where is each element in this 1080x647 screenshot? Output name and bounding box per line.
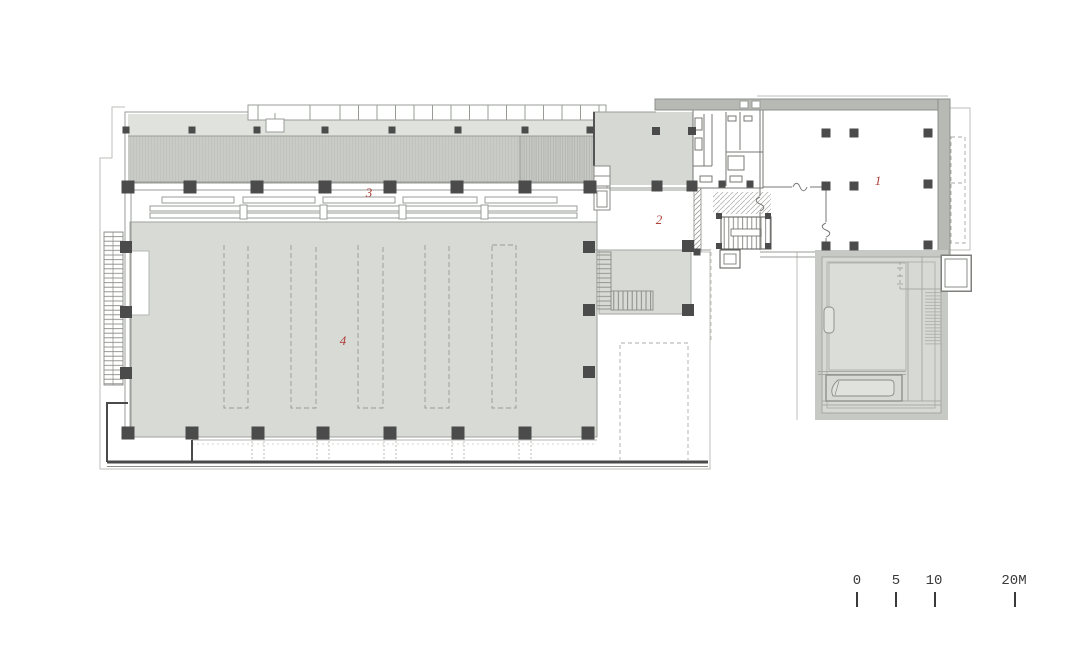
courtyard: [815, 250, 971, 420]
column: [254, 127, 261, 134]
column: [120, 367, 132, 379]
column: [691, 181, 698, 188]
column: [719, 181, 726, 188]
column: [850, 129, 859, 138]
column: [319, 181, 332, 194]
column: [652, 181, 663, 192]
stair-lower-box: [720, 250, 740, 268]
room-label-3: 3: [365, 185, 373, 200]
terrace-dashed-court: [620, 343, 688, 461]
column: [822, 242, 831, 251]
room-4-hall: [125, 190, 597, 437]
column: [120, 241, 132, 253]
scale-bar: 0 5 10 20M: [853, 573, 1027, 607]
scale-label-20m: 20M: [1001, 573, 1026, 589]
terrace-stair-west: [597, 252, 611, 309]
thick-wall-east: [938, 99, 950, 266]
floor-plan-canvas: 1 2 3 4 0 5 10 20M: [0, 0, 1080, 647]
column: [522, 127, 529, 134]
column: [924, 180, 933, 189]
column: [519, 427, 532, 440]
column: [716, 243, 722, 249]
column: [189, 127, 196, 134]
column: [584, 181, 597, 194]
column: [122, 181, 135, 194]
column: [747, 181, 754, 188]
column: [384, 427, 397, 440]
site-outline-east: [950, 108, 970, 250]
column: [682, 240, 694, 252]
column: [850, 182, 859, 191]
scale-label-0: 0: [853, 573, 861, 589]
column: [716, 213, 722, 219]
column: [822, 182, 831, 191]
column: [682, 304, 694, 316]
column: [688, 127, 696, 135]
shaft-box: [941, 255, 971, 291]
pool: [826, 375, 902, 401]
hatched-wall: [694, 188, 701, 252]
column: [850, 242, 859, 251]
courtyard-hatch-strip: [925, 291, 941, 345]
site-wall-south: [107, 462, 708, 467]
column: [451, 181, 464, 194]
scale-label-10: 10: [926, 573, 943, 589]
thick-wall-north: [655, 99, 950, 110]
courtyard-inner-panel: [829, 263, 906, 370]
column: [384, 181, 397, 194]
column: [519, 181, 532, 194]
column: [452, 427, 465, 440]
column: [582, 427, 595, 440]
column: [765, 243, 771, 249]
column: [186, 427, 199, 440]
scale-label-5: 5: [892, 573, 900, 589]
column: [822, 129, 831, 138]
column: [317, 427, 330, 440]
column: [924, 129, 933, 138]
sliding-track-band: [150, 197, 577, 219]
column: [583, 366, 595, 378]
column: [389, 127, 396, 134]
column: [583, 304, 595, 316]
room-label-4: 4: [340, 333, 347, 348]
stair-block: [713, 192, 771, 249]
column: [252, 427, 265, 440]
terrace: [597, 250, 711, 461]
scale-ticks: [857, 592, 1015, 607]
column: [924, 241, 933, 250]
roof-bump: [266, 119, 284, 132]
hall-fill: [130, 222, 597, 437]
east-dashed-outline: [951, 137, 965, 243]
room-label-2: 2: [656, 212, 663, 227]
column: [251, 181, 264, 194]
toilet-block: [693, 110, 763, 188]
room-label-1: 1: [875, 173, 882, 188]
hall-inset-corridor: [131, 251, 149, 315]
terrace-stair-small: [611, 291, 653, 310]
column: [652, 127, 660, 135]
column: [322, 127, 329, 134]
column: [587, 127, 594, 134]
column: [184, 181, 197, 194]
column: [694, 249, 701, 256]
south-walkway: [192, 440, 597, 461]
column: [123, 127, 130, 134]
column: [765, 213, 771, 219]
court-door-leaf: [824, 307, 834, 333]
column: [583, 241, 595, 253]
column: [455, 127, 462, 134]
column: [120, 306, 132, 318]
column: [122, 427, 135, 440]
